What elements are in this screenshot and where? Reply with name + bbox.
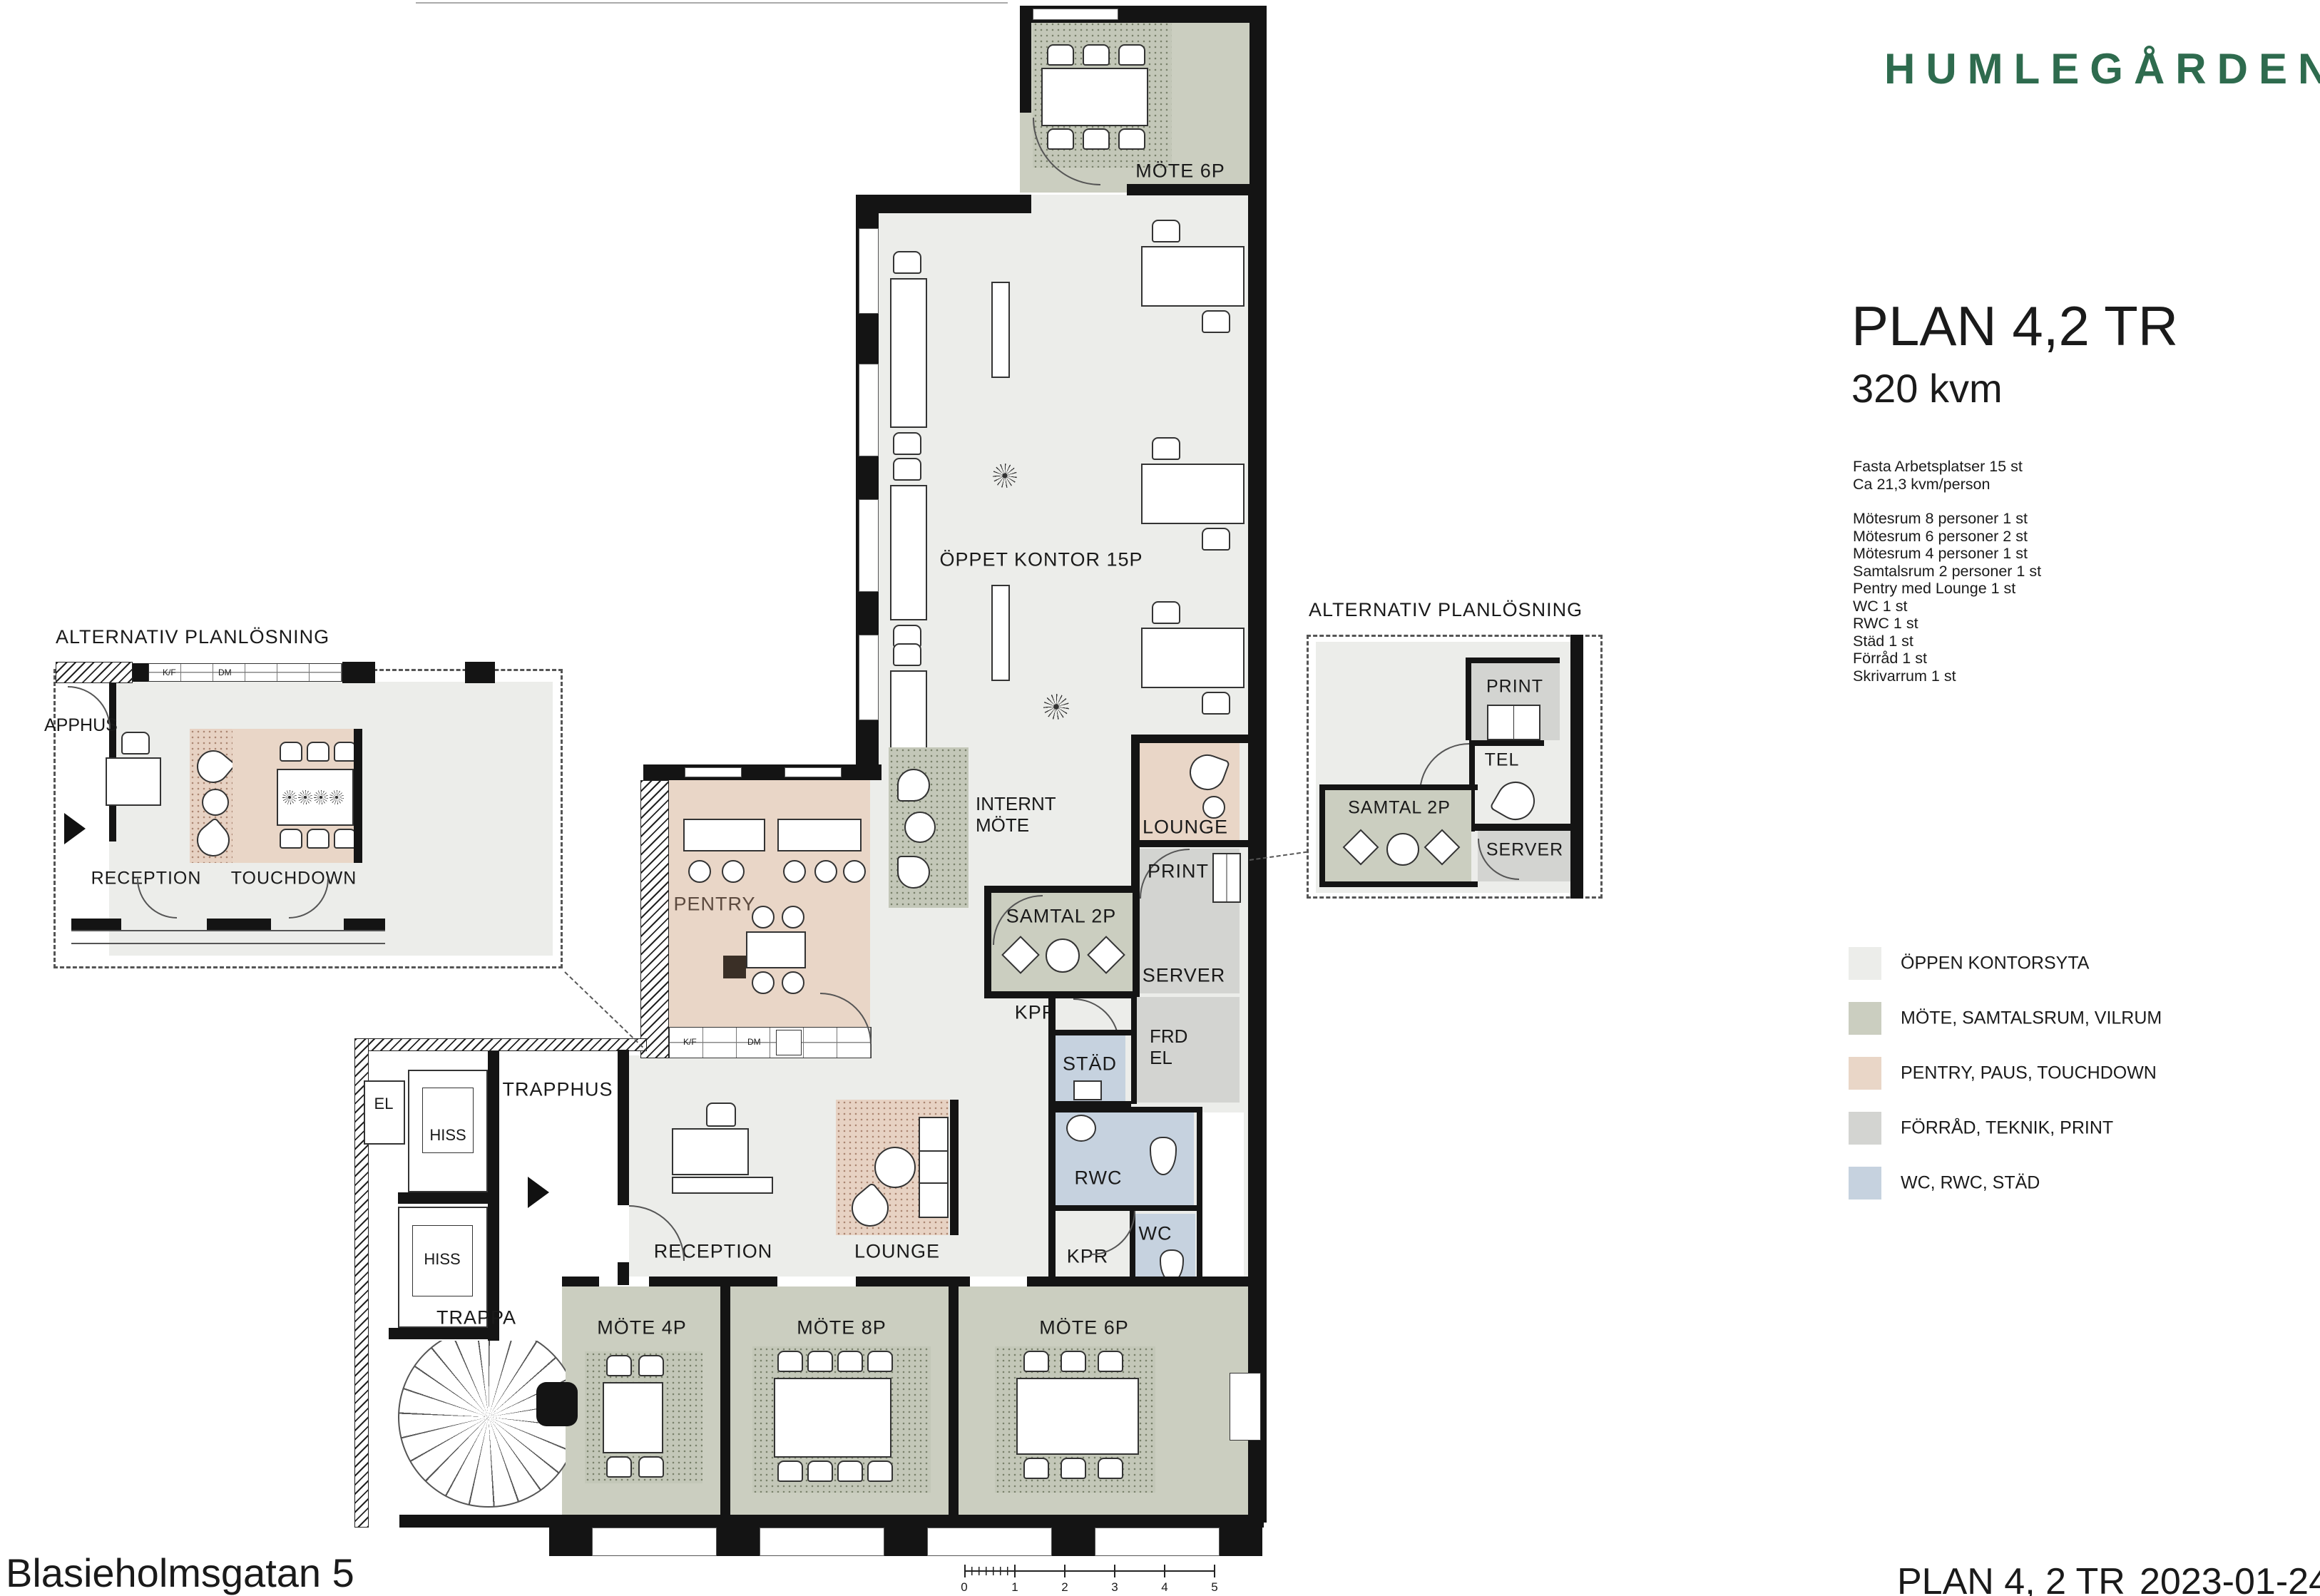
- chair: [1023, 1458, 1049, 1479]
- wall: [1131, 735, 1249, 743]
- party-wall: [640, 780, 669, 1058]
- wall-pier: [1220, 1528, 1262, 1556]
- chair: [893, 432, 921, 455]
- wall: [1250, 6, 1267, 198]
- table: [1016, 1378, 1139, 1455]
- room-label-pentry: PENTRY: [673, 894, 755, 916]
- round-table: [904, 812, 936, 843]
- party-wall: [56, 662, 133, 683]
- room-label-internt-mote: INTERNT MÖTE: [976, 793, 1068, 836]
- wall: [1319, 881, 1478, 887]
- desk: [890, 278, 927, 428]
- scale-bar: 0 1 2 3 4 5: [964, 1562, 1215, 1593]
- shelf: [991, 585, 1010, 681]
- fact-line: RWC 1 st: [1853, 615, 2041, 633]
- chair: [307, 829, 329, 849]
- stool: [722, 860, 745, 883]
- window-bay: [1230, 1373, 1261, 1441]
- facts-block: Fasta Arbetsplatser 15 st Ca 21,3 kvm/pe…: [1853, 458, 2041, 685]
- wall: [1473, 824, 1570, 831]
- wall: [342, 662, 375, 683]
- window: [859, 499, 879, 592]
- plant-icon: [993, 464, 1017, 488]
- page-subtitle: 320 kvm: [1851, 365, 2003, 411]
- left-inset-title: ALTERNATIV PLANLÖSNING: [56, 626, 329, 648]
- wall: [344, 919, 385, 930]
- wall: [354, 729, 362, 863]
- fact-line: Städ 1 st: [1853, 633, 2041, 650]
- wall: [1048, 991, 1056, 1285]
- chair: [893, 251, 921, 274]
- wall: [1466, 658, 1471, 740]
- bar-table: [683, 819, 765, 851]
- wall-pier: [1052, 1528, 1095, 1556]
- wall: [1127, 184, 1267, 195]
- appliance-label-kf: K/F: [163, 667, 176, 677]
- chair: [867, 1351, 893, 1372]
- wall: [1020, 6, 1031, 113]
- appliance-label-dm: DM: [218, 667, 232, 677]
- window-line: [71, 943, 385, 944]
- desk: [1141, 628, 1245, 688]
- chair: [606, 1456, 632, 1478]
- scale-number: 5: [1211, 1580, 1217, 1595]
- right-inset-title: ALTERNATIV PLANLÖSNING: [1309, 599, 1583, 620]
- spiral-stair-clip: [398, 1341, 566, 1515]
- room-label-inset-tel: TEL: [1485, 750, 1520, 771]
- legend-swatch-meeting: [1849, 1002, 1881, 1035]
- footer-plan: PLAN 4, 2 TR: [1897, 1560, 2125, 1596]
- chair: [1098, 1351, 1123, 1372]
- fact-line: Skrivarrum 1 st: [1853, 667, 2041, 685]
- scale-number: 2: [1061, 1580, 1068, 1595]
- footer-date: 2023-01-24: [2140, 1560, 2320, 1596]
- wall: [1197, 1107, 1202, 1285]
- chair: [1098, 1458, 1123, 1479]
- wall-pier: [884, 1528, 927, 1556]
- kitchen-counter: [148, 663, 342, 682]
- round-table: [1046, 938, 1080, 973]
- wall: [1131, 840, 1249, 847]
- plant-icon: [329, 790, 344, 804]
- desk: [890, 670, 927, 749]
- wall: [1466, 658, 1560, 663]
- reception-desk: [672, 1128, 749, 1175]
- shaft: [1202, 1112, 1244, 1280]
- wall: [1570, 635, 1583, 899]
- fact-spacer: [1853, 493, 2041, 510]
- window: [859, 228, 879, 314]
- scale-tick: [1214, 1565, 1215, 1577]
- bar-table: [777, 819, 862, 851]
- sink: [1066, 1115, 1096, 1142]
- table: [603, 1382, 663, 1453]
- window: [685, 767, 742, 777]
- table: [774, 1378, 891, 1458]
- chair: [1202, 310, 1230, 333]
- room-label-rwc: RWC: [1075, 1167, 1123, 1190]
- stool: [783, 860, 806, 883]
- scale-minor-ticks: [964, 1567, 1014, 1575]
- wall-pier: [717, 1528, 760, 1556]
- door-gap: [618, 1205, 629, 1262]
- wall: [643, 764, 882, 780]
- scale-number: 3: [1111, 1580, 1118, 1595]
- desk: [1141, 246, 1245, 307]
- wall: [71, 919, 121, 930]
- printer: [1212, 853, 1241, 903]
- chair: [1202, 692, 1230, 715]
- chair: [837, 1351, 863, 1372]
- scale-tick: [1014, 1565, 1016, 1577]
- chair: [893, 458, 921, 481]
- plant-icon: [314, 790, 328, 804]
- fact-line: WC 1 st: [1853, 598, 2041, 615]
- fact-line: Pentry med Lounge 1 st: [1853, 580, 2041, 598]
- chair: [1061, 1458, 1086, 1479]
- fact-line: Fasta Arbetsplatser 15 st: [1853, 458, 2041, 476]
- fact-line: Samtalsrum 2 personer 1 st: [1853, 563, 2041, 580]
- appliance-label-kf: K/F: [683, 1037, 697, 1047]
- desk: [1141, 464, 1245, 524]
- logo: HUMLEGÅRDEN: [1884, 44, 2320, 93]
- wall: [984, 886, 1140, 893]
- party-wall: [354, 1038, 647, 1051]
- stool: [782, 971, 804, 994]
- sink: [1073, 1080, 1102, 1100]
- chair: [777, 1461, 803, 1482]
- wall: [984, 991, 1140, 998]
- wall: [488, 1051, 499, 1344]
- chair: [121, 732, 150, 754]
- wall: [1048, 1101, 1131, 1107]
- fact-line: Ca 21,3 kvm/person: [1853, 476, 2041, 493]
- wall: [1048, 1030, 1131, 1035]
- room-label-inset-print: PRINT: [1486, 677, 1543, 697]
- frame-line: [416, 2, 1008, 4]
- room-label-trappa: TRAPPA: [436, 1307, 516, 1329]
- legend-label-pentry: PENTRY, PAUS, TOUCHDOWN: [1901, 1063, 2157, 1084]
- stool: [688, 860, 711, 883]
- wall: [1319, 784, 1325, 887]
- scale-tick: [1064, 1565, 1066, 1577]
- chair: [1152, 220, 1180, 242]
- room-label-el: EL: [374, 1095, 394, 1113]
- chair: [1152, 437, 1180, 460]
- wall: [1048, 1107, 1200, 1112]
- room-label-server: SERVER: [1143, 965, 1226, 987]
- chair: [638, 1456, 664, 1478]
- window: [859, 635, 879, 720]
- wall-pier: [549, 1528, 592, 1556]
- appliance: [776, 1030, 802, 1055]
- round-table: [1202, 796, 1225, 819]
- scale-tick: [1114, 1565, 1115, 1577]
- stool: [782, 906, 804, 929]
- scale-number: 4: [1161, 1580, 1167, 1595]
- window: [1033, 9, 1118, 20]
- window: [1095, 1528, 1220, 1556]
- scale-number: 0: [961, 1580, 967, 1595]
- floor-plan-page: MÖTE 6P ÖPPET KONTOR 15P INTERNT MÖTE LO…: [0, 0, 2320, 1596]
- round-table: [1386, 833, 1419, 866]
- window-line: [71, 930, 385, 931]
- wall: [1131, 743, 1140, 843]
- scale-tick: [1164, 1565, 1165, 1577]
- door-gap: [777, 1277, 856, 1286]
- wall: [949, 1286, 959, 1515]
- chair: [893, 643, 921, 666]
- wall: [1048, 1205, 1200, 1211]
- chair: [280, 742, 302, 762]
- plant-icon: [282, 790, 297, 804]
- chair: [1118, 128, 1145, 150]
- chair: [1202, 528, 1230, 551]
- wall: [1319, 784, 1478, 790]
- legend-swatch-wc: [1849, 1167, 1881, 1199]
- room-label-mote4p: MÖTE 4P: [597, 1317, 687, 1339]
- legend-label-wc: WC, RWC, STÄD: [1901, 1173, 2040, 1194]
- wall: [207, 919, 271, 930]
- lounge-chair: [897, 856, 930, 889]
- room-label-trapphus: TRAPPHUS: [502, 1079, 613, 1101]
- wall: [133, 663, 148, 682]
- wall: [1469, 740, 1544, 746]
- room-label-hiss2: HISS: [424, 1250, 460, 1269]
- chair: [280, 829, 302, 849]
- door-gap: [970, 1277, 1027, 1286]
- entry-arrow-icon: [528, 1177, 549, 1208]
- round-table: [874, 1147, 916, 1188]
- legend-label-meeting: MÖTE, SAMTALSRUM, VILRUM: [1901, 1008, 2162, 1029]
- wall: [562, 1277, 1264, 1286]
- room-label-frd-el: FRD EL: [1150, 1025, 1197, 1068]
- side-table: [723, 956, 746, 978]
- wall: [398, 1192, 491, 1204]
- entry-arrow-icon: [64, 813, 86, 844]
- fact-line: Mötesrum 8 personer 1 st: [1853, 510, 2041, 528]
- stair-core: [536, 1382, 578, 1426]
- wall: [399, 1515, 1264, 1528]
- room-label-wc: WC: [1139, 1223, 1172, 1245]
- chair: [1118, 44, 1145, 66]
- chair: [1047, 44, 1074, 66]
- legend-swatch-storage: [1849, 1112, 1881, 1145]
- shelf: [991, 282, 1010, 378]
- chair: [1061, 1351, 1086, 1372]
- chair: [638, 1355, 664, 1376]
- wall: [950, 1100, 959, 1235]
- stool: [843, 860, 866, 883]
- sofa: [919, 1117, 949, 1218]
- room-label-samtal2p: SAMTAL 2P: [1006, 906, 1117, 928]
- legend-swatch-open-office: [1849, 947, 1881, 980]
- fact-line: Förråd 1 st: [1853, 650, 2041, 667]
- plant-icon: [1043, 694, 1069, 720]
- legend-label-open-office: ÖPPEN KONTORSYTA: [1901, 953, 2089, 974]
- room-label-inset-server: SERVER: [1486, 840, 1563, 861]
- room-label-inset-samtal: SAMTAL 2P: [1348, 798, 1451, 819]
- room-label-mote6p-bottom: MÖTE 6P: [1039, 1317, 1129, 1339]
- window: [785, 767, 842, 777]
- room-label-lounge-upper: LOUNGE: [1143, 817, 1228, 839]
- round-table: [202, 789, 229, 816]
- room-label-hiss1: HISS: [429, 1126, 466, 1145]
- legend-label-storage: FÖRRÅD, TEKNIK, PRINT: [1901, 1118, 2113, 1139]
- reception-desk-return: [672, 1177, 773, 1194]
- room-label-lounge-lower: LOUNGE: [854, 1241, 940, 1263]
- printer: [1487, 705, 1540, 740]
- stool: [752, 971, 775, 994]
- page-title: PLAN 4,2 TR: [1851, 294, 2178, 359]
- chair: [1152, 601, 1180, 624]
- chair: [837, 1461, 863, 1482]
- stool: [814, 860, 837, 883]
- wall: [389, 1328, 499, 1339]
- chair: [307, 742, 329, 762]
- lounge-chair: [897, 769, 930, 802]
- chair: [1083, 44, 1110, 66]
- wall: [984, 886, 991, 998]
- room-label-open-office: ÖPPET KONTOR 15P: [939, 549, 1143, 571]
- window: [927, 1528, 1052, 1556]
- footer-address: Blasieholmsgatan 5: [6, 1550, 354, 1596]
- chair: [1023, 1351, 1049, 1372]
- table: [746, 931, 806, 968]
- scale-number: 1: [1011, 1580, 1018, 1595]
- window: [859, 364, 879, 456]
- fact-line: Mötesrum 4 personer 1 st: [1853, 545, 2041, 563]
- window: [760, 1528, 884, 1556]
- room-label-mote6p-top: MÖTE 6P: [1135, 160, 1225, 183]
- reception-desk: [106, 757, 161, 806]
- chair: [807, 1351, 833, 1372]
- chair: [777, 1351, 803, 1372]
- plant-icon: [298, 790, 312, 804]
- chair: [867, 1461, 893, 1482]
- room-label-mote8p: MÖTE 8P: [797, 1317, 886, 1339]
- wall: [1131, 997, 1137, 1104]
- room-label-print: PRINT: [1148, 861, 1209, 883]
- desk: [890, 485, 927, 620]
- appliance-label-dm: DM: [747, 1037, 761, 1047]
- leader-line: [564, 971, 643, 1048]
- wall: [465, 662, 495, 683]
- window: [592, 1528, 717, 1556]
- wall: [720, 1286, 730, 1515]
- fact-line: Mötesrum 6 personer 2 st: [1853, 528, 2041, 546]
- wall: [856, 195, 1031, 213]
- room-label-stad: STÄD: [1063, 1053, 1117, 1075]
- legend-swatch-pentry: [1849, 1057, 1881, 1090]
- chair: [807, 1461, 833, 1482]
- chair: [606, 1355, 632, 1376]
- chair: [706, 1103, 736, 1127]
